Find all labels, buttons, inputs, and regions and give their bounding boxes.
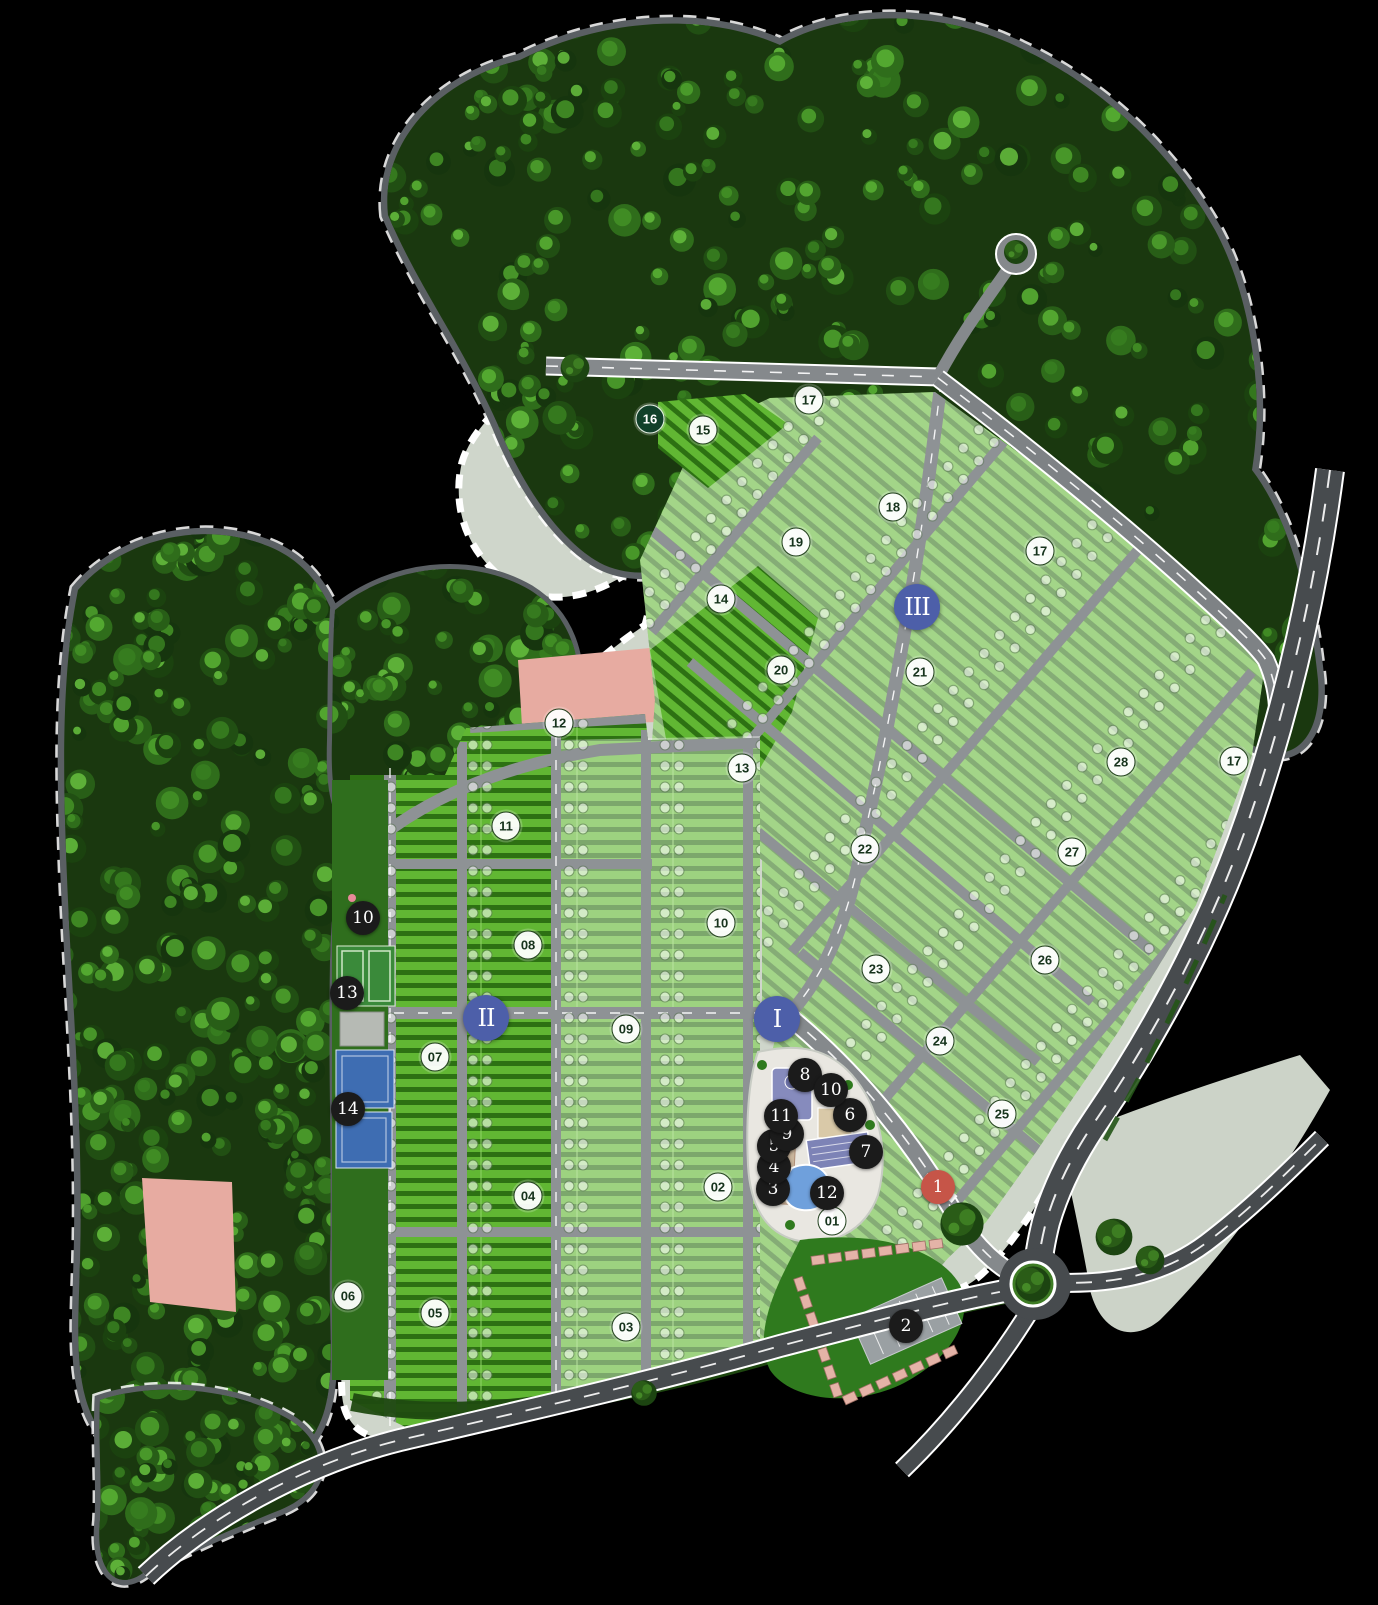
block-marker-03[interactable]: 03 xyxy=(612,1313,641,1342)
block-marker-13[interactable]: 13 xyxy=(728,753,757,782)
block-marker-22[interactable]: 22 xyxy=(850,835,879,864)
amenity-marker-10[interactable]: 10 xyxy=(346,901,380,935)
block-marker-11[interactable]: 11 xyxy=(492,811,521,840)
amenity-marker-7[interactable]: 7 xyxy=(849,1135,883,1169)
phase-marker-II[interactable]: II xyxy=(463,995,509,1041)
block-marker-17[interactable]: 17 xyxy=(1219,746,1248,775)
block-marker-07[interactable]: 07 xyxy=(421,1043,450,1072)
block-marker-24[interactable]: 24 xyxy=(925,1027,954,1056)
block-marker-12[interactable]: 12 xyxy=(545,709,574,738)
block-marker-17[interactable]: 17 xyxy=(795,385,824,414)
block-marker-20[interactable]: 20 xyxy=(767,655,796,684)
amenity-marker-11[interactable]: 11 xyxy=(764,1099,798,1133)
block-marker-15[interactable]: 15 xyxy=(689,415,718,444)
block-marker-08[interactable]: 08 xyxy=(514,931,543,960)
markers-layer: 0102030405060708091011121314151617171718… xyxy=(0,0,1378,1605)
block-marker-21[interactable]: 21 xyxy=(905,658,934,687)
block-marker-27[interactable]: 27 xyxy=(1057,837,1086,866)
block-marker-23[interactable]: 23 xyxy=(861,954,890,983)
block-marker-10[interactable]: 10 xyxy=(706,909,735,938)
amenity-marker-13[interactable]: 13 xyxy=(330,976,364,1010)
block-marker-06[interactable]: 06 xyxy=(333,1282,362,1311)
block-marker-28[interactable]: 28 xyxy=(1107,748,1136,777)
block-marker-17[interactable]: 17 xyxy=(1025,536,1054,565)
amenity-marker-2[interactable]: 2 xyxy=(889,1309,923,1343)
block-marker-16[interactable]: 16 xyxy=(636,404,665,433)
amenity-marker-10[interactable]: 10 xyxy=(814,1073,848,1107)
block-marker-19[interactable]: 19 xyxy=(781,528,810,557)
block-marker-04[interactable]: 04 xyxy=(514,1182,543,1211)
block-marker-18[interactable]: 18 xyxy=(878,493,907,522)
block-marker-26[interactable]: 26 xyxy=(1030,945,1059,974)
amenity-marker-14[interactable]: 14 xyxy=(331,1092,365,1126)
amenity-marker-12[interactable]: 12 xyxy=(810,1176,844,1210)
block-marker-02[interactable]: 02 xyxy=(703,1173,732,1202)
block-marker-25[interactable]: 25 xyxy=(987,1100,1016,1129)
block-marker-05[interactable]: 05 xyxy=(421,1299,450,1328)
block-marker-09[interactable]: 09 xyxy=(612,1014,641,1043)
amenity-marker-1[interactable]: 1 xyxy=(921,1170,955,1204)
block-marker-14[interactable]: 14 xyxy=(706,584,735,613)
phase-marker-III[interactable]: III xyxy=(894,584,940,630)
master-plan-canvas: 0102030405060708091011121314151617171718… xyxy=(0,0,1378,1605)
phase-marker-I[interactable]: I xyxy=(754,996,800,1042)
block-marker-01[interactable]: 01 xyxy=(818,1206,847,1235)
